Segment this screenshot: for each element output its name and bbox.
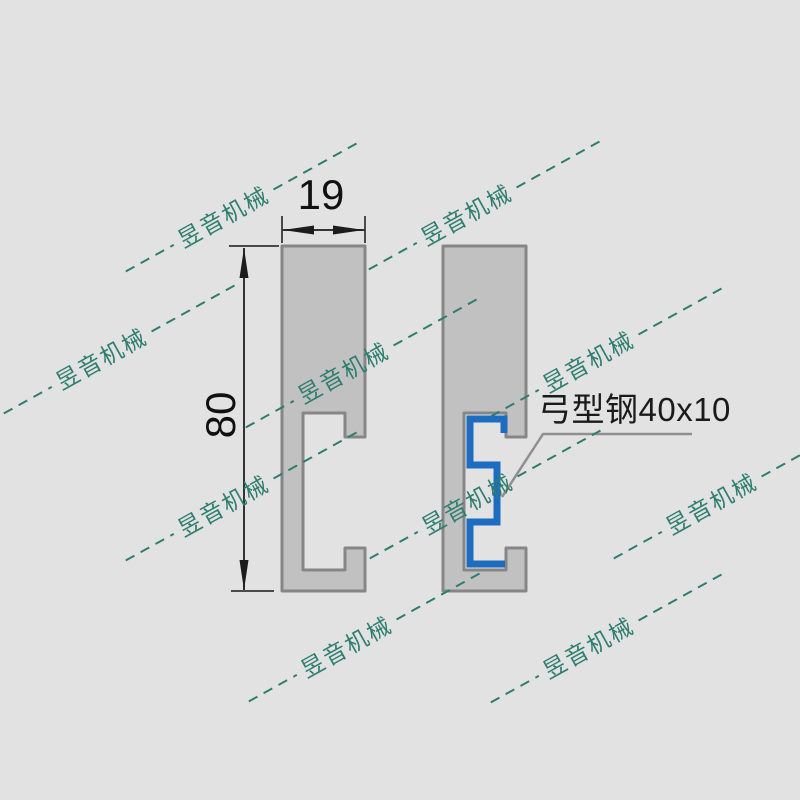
bow-steel-highlight xyxy=(470,419,505,564)
width-arrow-right xyxy=(333,226,364,235)
height-arrow-bottom xyxy=(240,560,249,590)
left-profile-shape xyxy=(282,246,365,591)
height-arrow-top xyxy=(240,248,249,278)
bow-steel-label: 弓型钢40x10 xyxy=(538,391,731,429)
width-arrow-left xyxy=(283,226,314,235)
width-dimension-value: 19 xyxy=(281,172,361,218)
height-dimension-value: 80 xyxy=(198,375,244,455)
technical-drawing-canvas: 昱音机械 昱音机械 昱音机械 昱音机械 昱音机械 昱音机械 昱音机械 xyxy=(0,0,800,800)
label-leader-line xyxy=(502,434,692,497)
